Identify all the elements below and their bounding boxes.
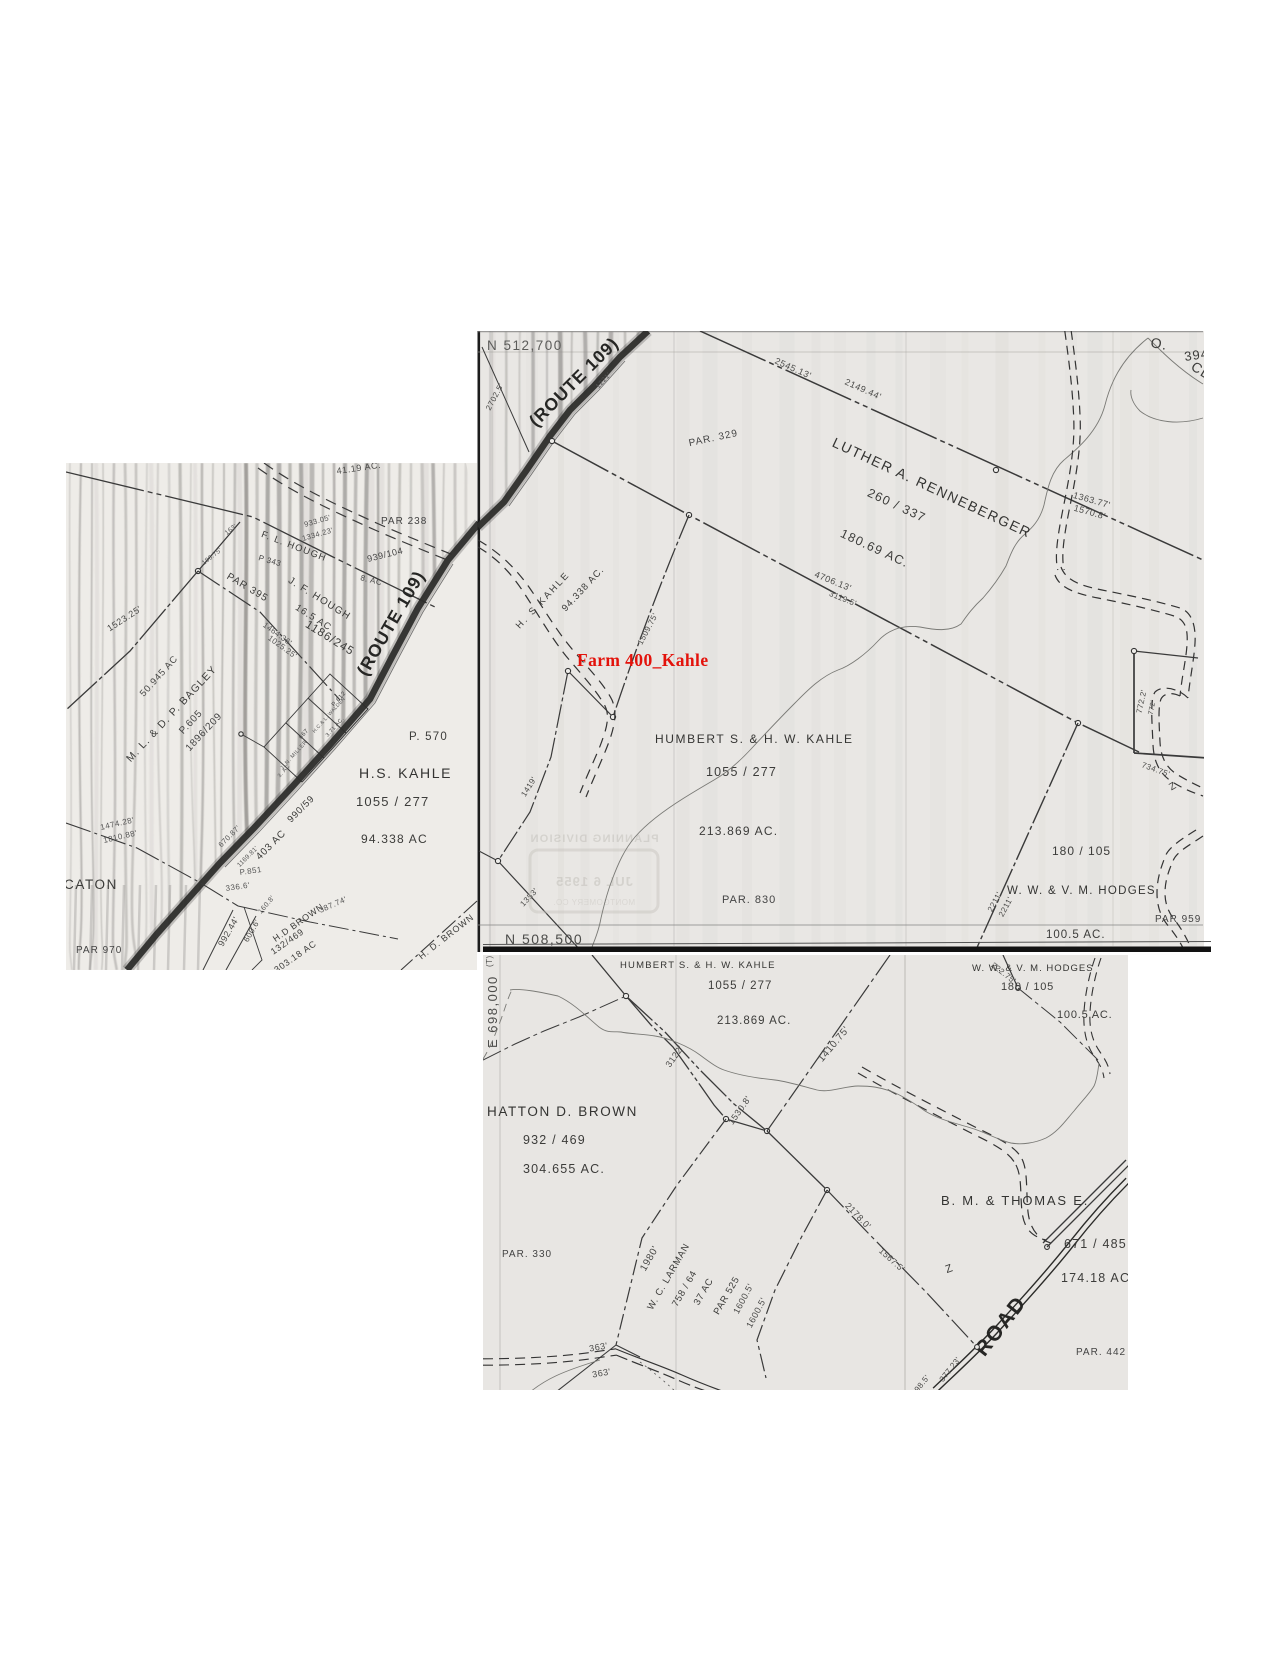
- svg-text:PAR 959: PAR 959: [1155, 914, 1201, 925]
- svg-text:HATTON D. BROWN: HATTON D. BROWN: [487, 1104, 638, 1119]
- svg-text:CATON: CATON: [64, 877, 118, 892]
- svg-text:P. 570: P. 570: [409, 731, 448, 743]
- svg-text:PAR. 830: PAR. 830: [722, 894, 776, 906]
- svg-text:174.18 AC.: 174.18 AC.: [1061, 1271, 1135, 1285]
- svg-text:E 698,000: E 698,000: [485, 975, 500, 1048]
- svg-text:W. W. & V. M. HODGES: W. W. & V. M. HODGES: [972, 963, 1094, 974]
- svg-text:304.655 AC.: 304.655 AC.: [523, 1162, 605, 1176]
- svg-text:PLANNING DIVISION: PLANNING DIVISION: [529, 833, 658, 845]
- svg-text:100.5 AC.: 100.5 AC.: [1046, 929, 1106, 941]
- svg-text:213.869 AC.: 213.869 AC.: [699, 824, 778, 838]
- svg-text:H.S. KAHLE: H.S. KAHLE: [359, 765, 452, 781]
- svg-text:1055 / 277: 1055 / 277: [708, 980, 772, 992]
- svg-text:HUMBERT S. & H. W. KAHLE: HUMBERT S. & H. W. KAHLE: [655, 732, 854, 746]
- svg-text:213.869 AC.: 213.869 AC.: [717, 1015, 791, 1027]
- svg-text:180 / 105: 180 / 105: [1052, 844, 1111, 858]
- svg-text:JUL 6 1955: JUL 6 1955: [555, 874, 633, 889]
- svg-text:W. W. & V. M. HODGES: W. W. & V. M. HODGES: [1007, 885, 1156, 897]
- svg-text:1055 / 277: 1055 / 277: [706, 765, 777, 779]
- svg-text:180 / 105: 180 / 105: [1001, 981, 1054, 993]
- svg-text:(T): (T): [485, 955, 494, 967]
- svg-text:MONTGOMERY CO.: MONTGOMERY CO.: [553, 898, 635, 907]
- svg-text:N 512,700: N 512,700: [487, 338, 563, 353]
- svg-text:1055 / 277: 1055 / 277: [356, 794, 429, 809]
- svg-text:100.5 AC.: 100.5 AC.: [1057, 1009, 1113, 1021]
- svg-text:PAR. 330: PAR. 330: [502, 1249, 552, 1260]
- svg-text:Farm 400_Kahle: Farm 400_Kahle: [577, 650, 708, 670]
- svg-text:B. M. & THOMAS E.: B. M. & THOMAS E.: [941, 1193, 1089, 1208]
- svg-text:671 / 485: 671 / 485: [1064, 1237, 1127, 1251]
- svg-text:O.: O.: [1149, 334, 1168, 353]
- svg-text:94.338 AC: 94.338 AC: [361, 832, 428, 846]
- svg-text:932 / 469: 932 / 469: [523, 1133, 586, 1147]
- svg-text:HUMBERT S. & H. W. KAHLE: HUMBERT S. & H. W. KAHLE: [620, 960, 776, 971]
- svg-text:PAR. 442: PAR. 442: [1076, 1347, 1126, 1358]
- svg-text:PAR 238: PAR 238: [381, 516, 427, 527]
- svg-text:PAR 970: PAR 970: [76, 945, 122, 956]
